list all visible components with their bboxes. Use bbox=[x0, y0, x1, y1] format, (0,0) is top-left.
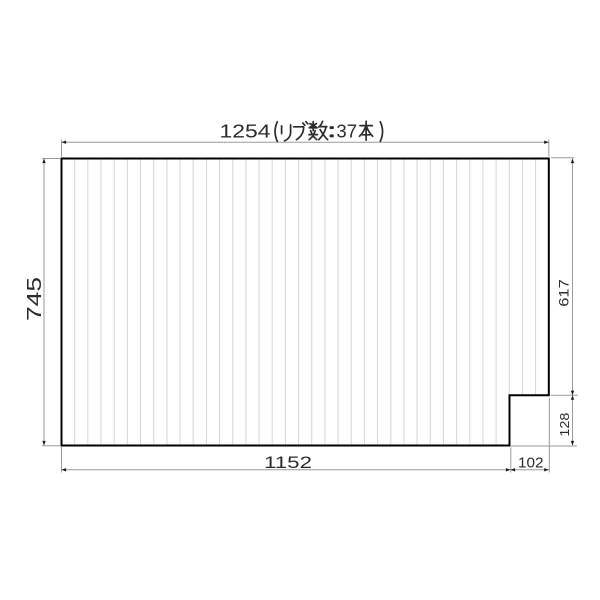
svg-text:1152: 1152 bbox=[264, 453, 312, 472]
svg-text:37: 37 bbox=[336, 120, 357, 141]
svg-text:617: 617 bbox=[557, 279, 572, 307]
svg-text:745: 745 bbox=[24, 277, 46, 321]
svg-text:102: 102 bbox=[518, 454, 544, 471]
svg-text:1254: 1254 bbox=[220, 120, 271, 141]
svg-text:128: 128 bbox=[557, 413, 572, 437]
